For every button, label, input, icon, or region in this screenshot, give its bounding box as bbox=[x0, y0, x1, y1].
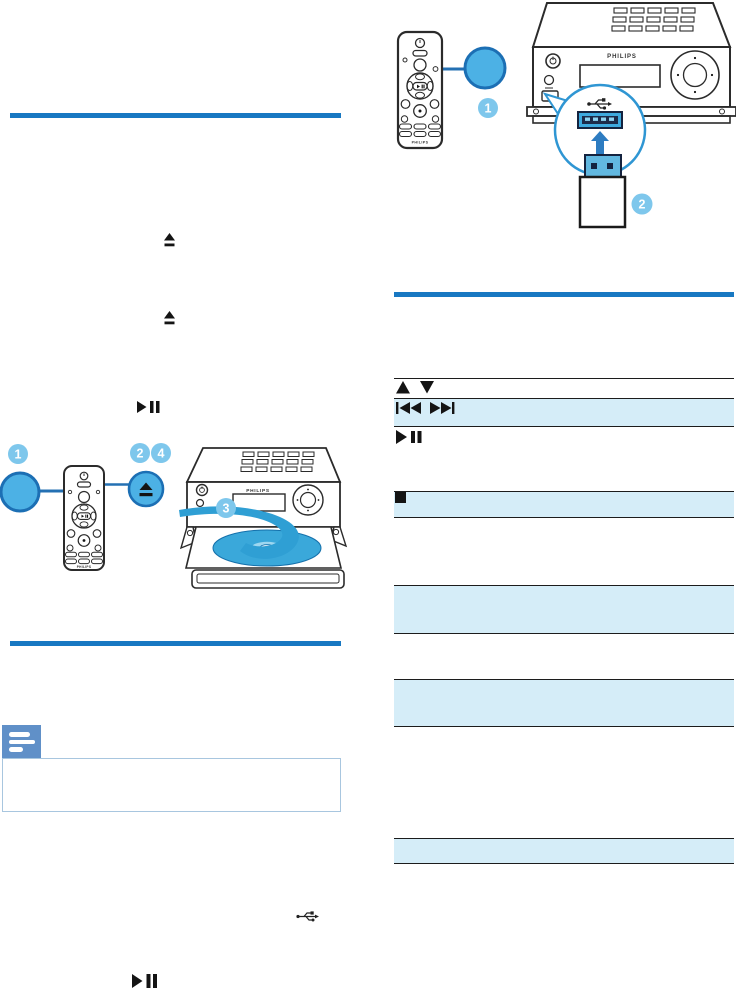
usb-icon bbox=[296, 910, 319, 923]
svg-text:2: 2 bbox=[137, 447, 144, 461]
play-pause-icon bbox=[132, 974, 158, 988]
hifi-system: PHILIPS bbox=[179, 448, 346, 588]
table-row-highlight bbox=[394, 585, 734, 633]
table-line bbox=[394, 679, 734, 681]
magnified-button bbox=[1, 473, 39, 511]
remote-control: PHILIPS bbox=[398, 32, 442, 148]
remote-control: PHILIPS bbox=[64, 466, 104, 570]
load-disc-diagram: PHILIPS 1 2 4 PHILIPS bbox=[0, 440, 360, 605]
play-pause-icon bbox=[137, 401, 161, 413]
table-line bbox=[394, 517, 734, 519]
callout-2: 2 bbox=[632, 194, 653, 215]
table-row-highlight bbox=[394, 491, 734, 517]
connect-usb-diagram: PHILIPS 1 PHILIPS bbox=[392, 0, 736, 260]
up-down-icons bbox=[396, 381, 440, 394]
table-line bbox=[394, 726, 734, 728]
device-brand-label: PHILIPS bbox=[246, 488, 270, 494]
table-line bbox=[394, 863, 734, 865]
table-line bbox=[394, 585, 734, 587]
play-pause-icon bbox=[396, 430, 423, 444]
callout-4: 4 bbox=[151, 443, 171, 463]
remote-brand-label: PHILIPS bbox=[412, 141, 429, 145]
table-line bbox=[394, 838, 734, 840]
eject-icon bbox=[164, 233, 175, 247]
table-line bbox=[394, 491, 734, 493]
previous-next-icons bbox=[396, 402, 455, 414]
svg-text:1: 1 bbox=[15, 448, 22, 462]
device-brand-label: PHILIPS bbox=[607, 54, 637, 60]
note-icon bbox=[2, 725, 41, 758]
manual-page: PHILIPS 1 2 4 PHILIPS bbox=[0, 0, 736, 992]
remote-brand-label: PHILIPS bbox=[77, 565, 92, 569]
svg-text:2: 2 bbox=[639, 198, 646, 212]
section-divider-2 bbox=[10, 641, 341, 646]
usb-stick bbox=[580, 155, 625, 227]
table-line bbox=[394, 398, 734, 400]
callout-3: 3 bbox=[216, 498, 236, 518]
svg-text:3: 3 bbox=[223, 502, 230, 516]
usb-socket bbox=[578, 112, 622, 128]
section-divider-3 bbox=[394, 292, 734, 297]
eject-icon bbox=[164, 311, 175, 325]
svg-text:4: 4 bbox=[158, 447, 165, 461]
callout-2: 2 bbox=[130, 443, 150, 463]
stop-icon bbox=[395, 492, 406, 503]
callout-1: 1 bbox=[478, 98, 498, 118]
table-line bbox=[394, 633, 734, 635]
table-line bbox=[394, 378, 734, 380]
table-line bbox=[394, 426, 734, 428]
note-box bbox=[2, 758, 341, 812]
svg-text:1: 1 bbox=[485, 102, 492, 116]
section-divider-1 bbox=[10, 113, 341, 118]
table-row-highlight bbox=[394, 679, 734, 726]
eject-button bbox=[129, 472, 163, 506]
magnified-button bbox=[465, 48, 505, 88]
table-row-highlight bbox=[394, 838, 734, 863]
callout-1: 1 bbox=[8, 444, 28, 464]
